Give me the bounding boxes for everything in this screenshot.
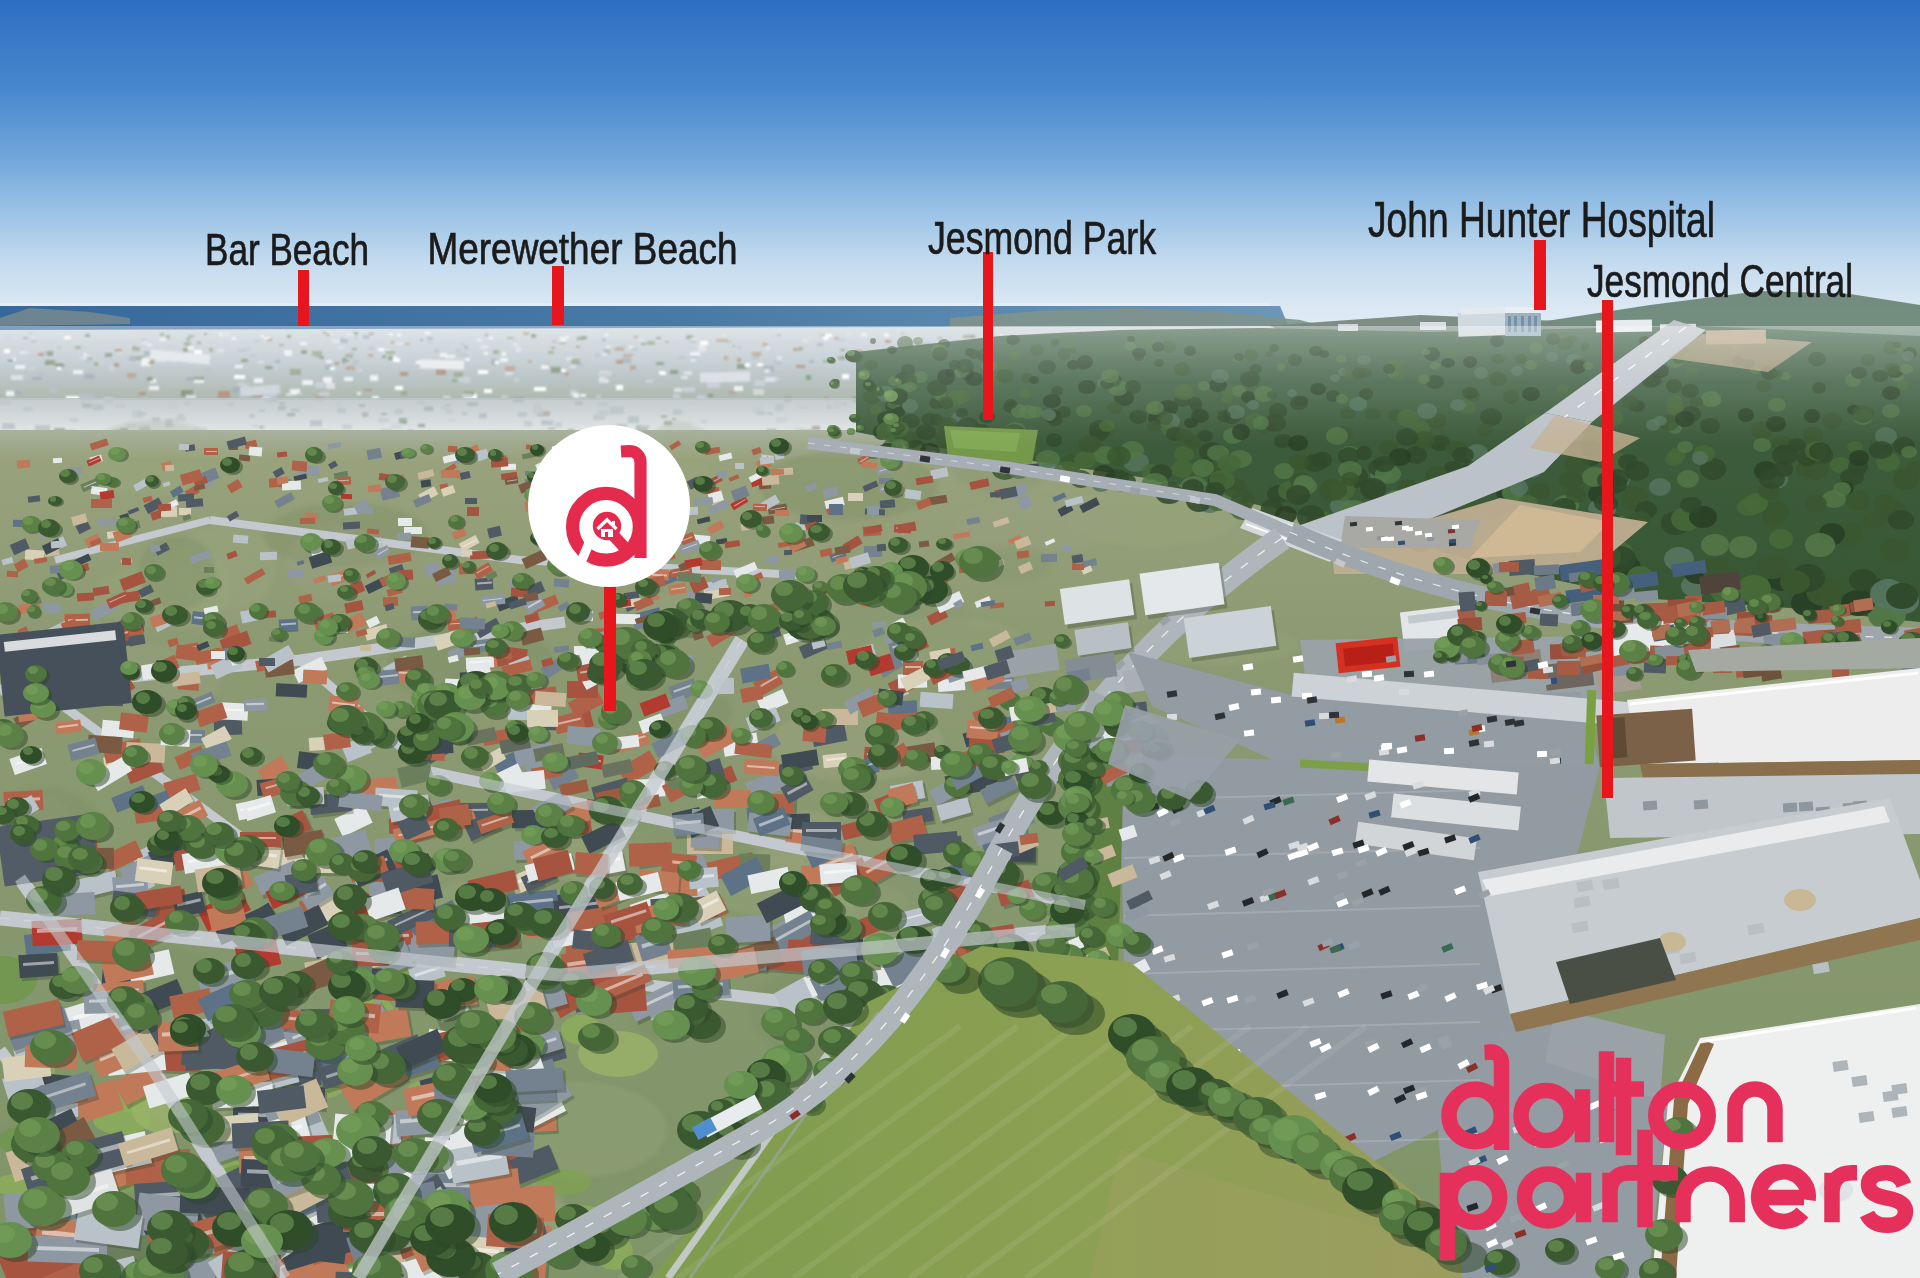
svg-text:Bar Beach: Bar Beach [205, 224, 369, 275]
svg-text:Jesmond Park: Jesmond Park [928, 211, 1156, 264]
svg-text:John Hunter Hospital: John Hunter Hospital [1368, 192, 1715, 248]
svg-text:Jesmond Central: Jesmond Central [1587, 255, 1853, 307]
svg-text:Merewether Beach: Merewether Beach [428, 223, 738, 274]
